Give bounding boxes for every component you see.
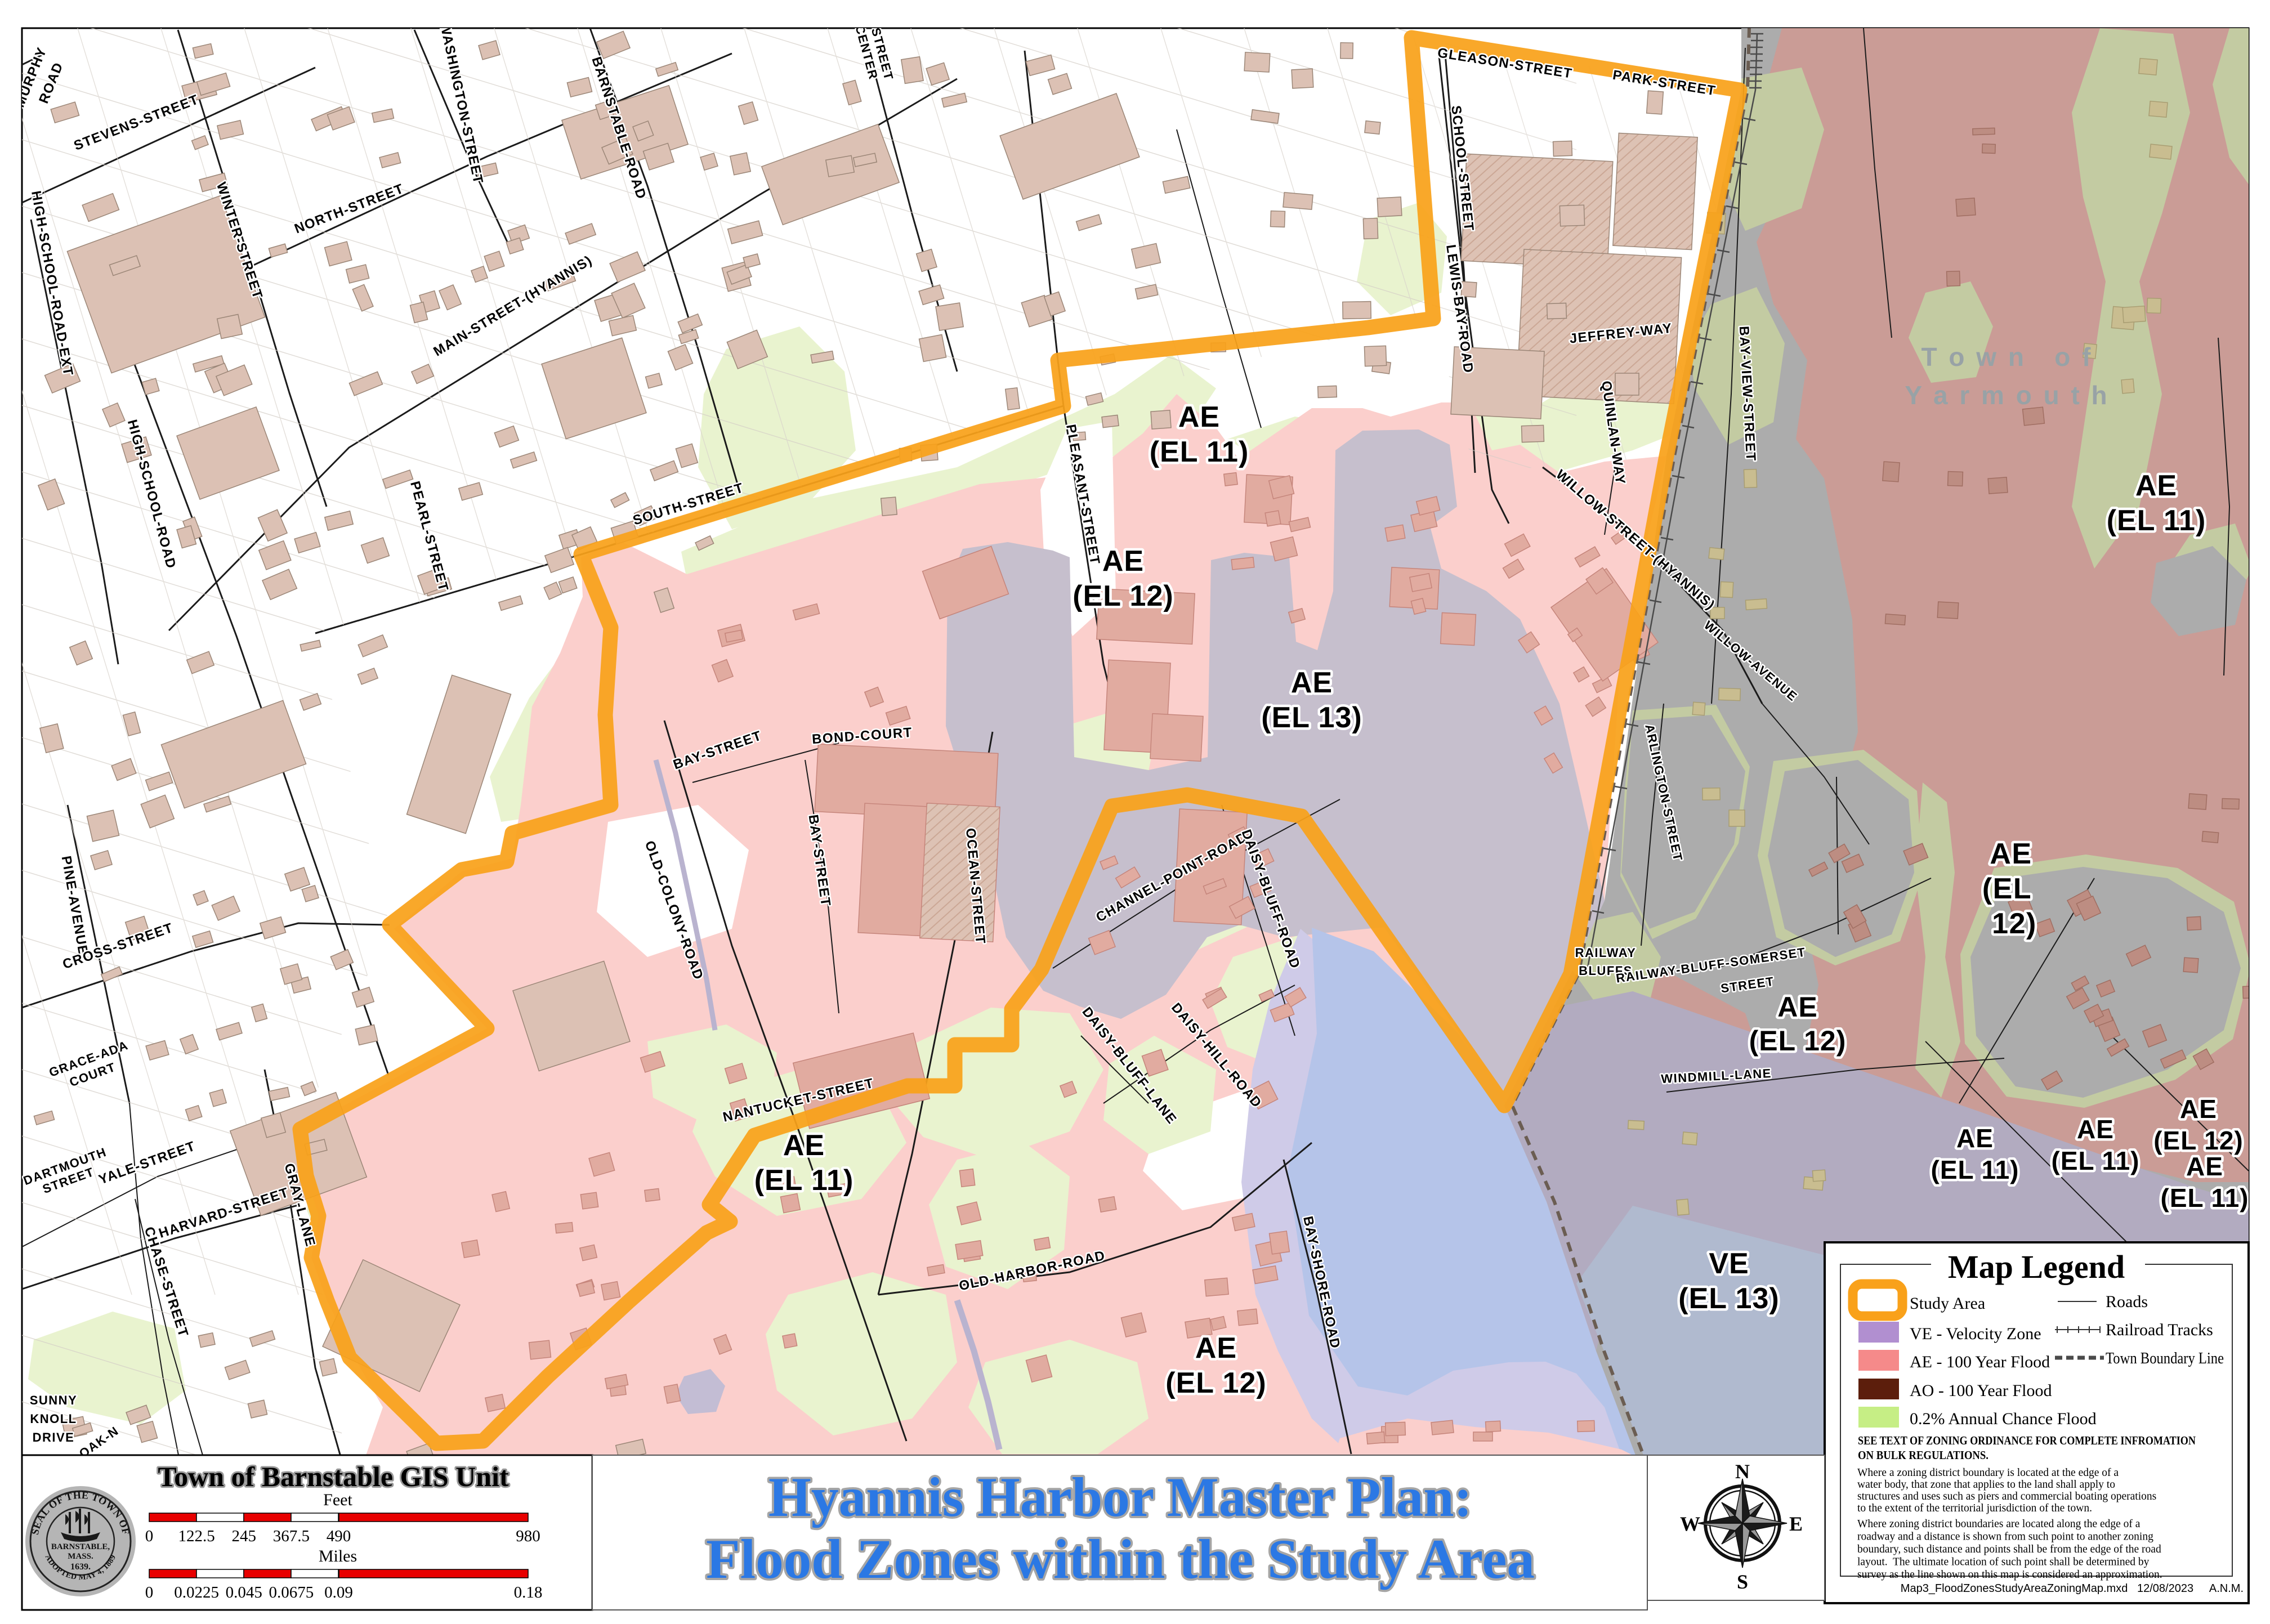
svg-text:AE: AE <box>1178 401 1220 433</box>
svg-text:VE: VE <box>1709 1247 1749 1280</box>
svg-text:Roads: Roads <box>2106 1292 2148 1311</box>
svg-text:W: W <box>1680 1513 1700 1535</box>
svg-text:roadway and a distance is show: roadway and a distance is shown from suc… <box>1857 1531 2153 1543</box>
svg-text:Study Area: Study Area <box>1910 1294 1985 1313</box>
svg-text:AE: AE <box>1195 1332 1237 1364</box>
svg-text:0.0225: 0.0225 <box>174 1583 219 1601</box>
svg-text:SUNNY: SUNNY <box>30 1393 78 1407</box>
svg-text:(EL 12): (EL 12) <box>1165 1367 1266 1399</box>
svg-text:AE: AE <box>2077 1115 2114 1144</box>
svg-text:Hyannis Harbor Master Plan:: Hyannis Harbor Master Plan: <box>768 1466 1472 1528</box>
svg-text:S: S <box>1737 1571 1748 1593</box>
svg-text:MASS.: MASS. <box>68 1552 93 1561</box>
svg-text:Where zoning district boundari: Where zoning district boundaries are loc… <box>1857 1518 2141 1530</box>
svg-text:Town Boundary Line: Town Boundary Line <box>2106 1350 2224 1367</box>
svg-text:T o w n o f: T o w n o f <box>1922 342 2093 372</box>
svg-text:to the extent of the territori: to the extent of the territorial jurisdi… <box>1857 1502 2092 1514</box>
svg-text:Y a r m o u t h: Y a r m o u t h <box>1905 381 2109 410</box>
svg-text:AE: AE <box>1956 1124 1994 1153</box>
svg-text:0: 0 <box>145 1583 154 1601</box>
svg-text:Map3_FloodZonesStudyAreaZoning: Map3_FloodZonesStudyAreaZoningMap.mxd 12… <box>1901 1582 2244 1595</box>
svg-text:ON BULK REGULATIONS.: ON BULK REGULATIONS. <box>1858 1448 1989 1462</box>
svg-text:(EL 11): (EL 11) <box>2052 1146 2140 1175</box>
svg-text:AE: AE <box>1777 991 1817 1023</box>
svg-text:layout. The ultimate location: layout. The ultimate location of such po… <box>1857 1556 2150 1568</box>
svg-text:water body, that zone that app: water body, that zone that applies to th… <box>1857 1479 2115 1491</box>
svg-text:boundary, such distance and po: boundary, such distance and points shall… <box>1857 1544 2161 1555</box>
svg-text:(EL 11): (EL 11) <box>754 1164 854 1197</box>
svg-text:Where a zoning district bounda: Where a zoning district boundary is loca… <box>1857 1467 2119 1479</box>
svg-text:Feet: Feet <box>323 1491 352 1509</box>
svg-text:BARNSTABLE,: BARNSTABLE, <box>51 1542 110 1551</box>
svg-text:122.5: 122.5 <box>178 1527 215 1545</box>
svg-text:0.18: 0.18 <box>514 1583 543 1601</box>
svg-text:0.09: 0.09 <box>324 1583 353 1601</box>
svg-text:Railroad Tracks: Railroad Tracks <box>2106 1321 2213 1339</box>
svg-text:RAILWAY: RAILWAY <box>1575 946 1637 960</box>
svg-text:Miles: Miles <box>319 1547 357 1565</box>
svg-text:Flood Zones within the Study A: Flood Zones within the Study Area <box>706 1528 1535 1590</box>
svg-text:(EL 11): (EL 11) <box>1931 1155 2019 1184</box>
svg-text:AE: AE <box>2186 1152 2223 1181</box>
svg-text:245: 245 <box>232 1527 257 1545</box>
svg-text:DRIVE: DRIVE <box>33 1430 75 1444</box>
svg-text:(EL 12): (EL 12) <box>1073 580 1173 612</box>
svg-text:(EL 12): (EL 12) <box>2153 1126 2244 1155</box>
svg-text:12): 12) <box>1992 907 2037 940</box>
svg-text:structures and uses such as pi: structures and uses such as piers and co… <box>1857 1491 2156 1502</box>
svg-text:N: N <box>1735 1460 1750 1483</box>
svg-text:(EL 12): (EL 12) <box>1749 1025 1847 1057</box>
svg-text:E: E <box>1789 1513 1803 1535</box>
svg-text:367.5: 367.5 <box>273 1527 310 1545</box>
svg-text:VE - Velocity Zone: VE - Velocity Zone <box>1910 1325 2041 1343</box>
svg-text:490: 490 <box>327 1527 351 1545</box>
svg-text:AE: AE <box>783 1129 825 1162</box>
svg-text:0.2% Annual Chance Flood: 0.2% Annual Chance Flood <box>1910 1410 2097 1428</box>
svg-text:AE: AE <box>1291 666 1333 699</box>
svg-text:(EL 11): (EL 11) <box>1150 436 1249 468</box>
svg-text:(EL 13): (EL 13) <box>1678 1282 1779 1315</box>
svg-text:0.0675: 0.0675 <box>269 1583 314 1601</box>
svg-text:Map Legend: Map Legend <box>1948 1249 2125 1285</box>
svg-text:Town of Barnstable GIS Unit: Town of Barnstable GIS Unit <box>158 1461 509 1492</box>
svg-text:(EL: (EL <box>1982 873 2032 905</box>
svg-text:AE: AE <box>2180 1094 2217 1124</box>
svg-text:(EL 11): (EL 11) <box>2107 504 2206 537</box>
svg-text:AE: AE <box>2135 469 2177 502</box>
svg-text:(EL 13): (EL 13) <box>1261 701 1362 734</box>
svg-text:AO - 100 Year Flood: AO - 100 Year Flood <box>1910 1381 2052 1400</box>
svg-text:1639.: 1639. <box>70 1562 91 1572</box>
svg-text:AE: AE <box>1102 545 1144 578</box>
svg-text:AE - 100 Year Flood: AE - 100 Year Flood <box>1910 1353 2050 1371</box>
svg-text:0: 0 <box>145 1527 154 1545</box>
svg-text:survey as the line shown on th: survey as the line shown on this map is … <box>1857 1569 2162 1581</box>
svg-text:SEE TEXT OF ZONING ORDINANCE F: SEE TEXT OF ZONING ORDINANCE FOR COMPLET… <box>1858 1434 2196 1447</box>
svg-text:KNOLL: KNOLL <box>30 1412 77 1426</box>
svg-text:980: 980 <box>516 1527 540 1545</box>
svg-text:(EL 11): (EL 11) <box>2161 1183 2249 1213</box>
svg-text:AE: AE <box>1990 838 2032 870</box>
svg-text:0.045: 0.045 <box>226 1583 262 1601</box>
